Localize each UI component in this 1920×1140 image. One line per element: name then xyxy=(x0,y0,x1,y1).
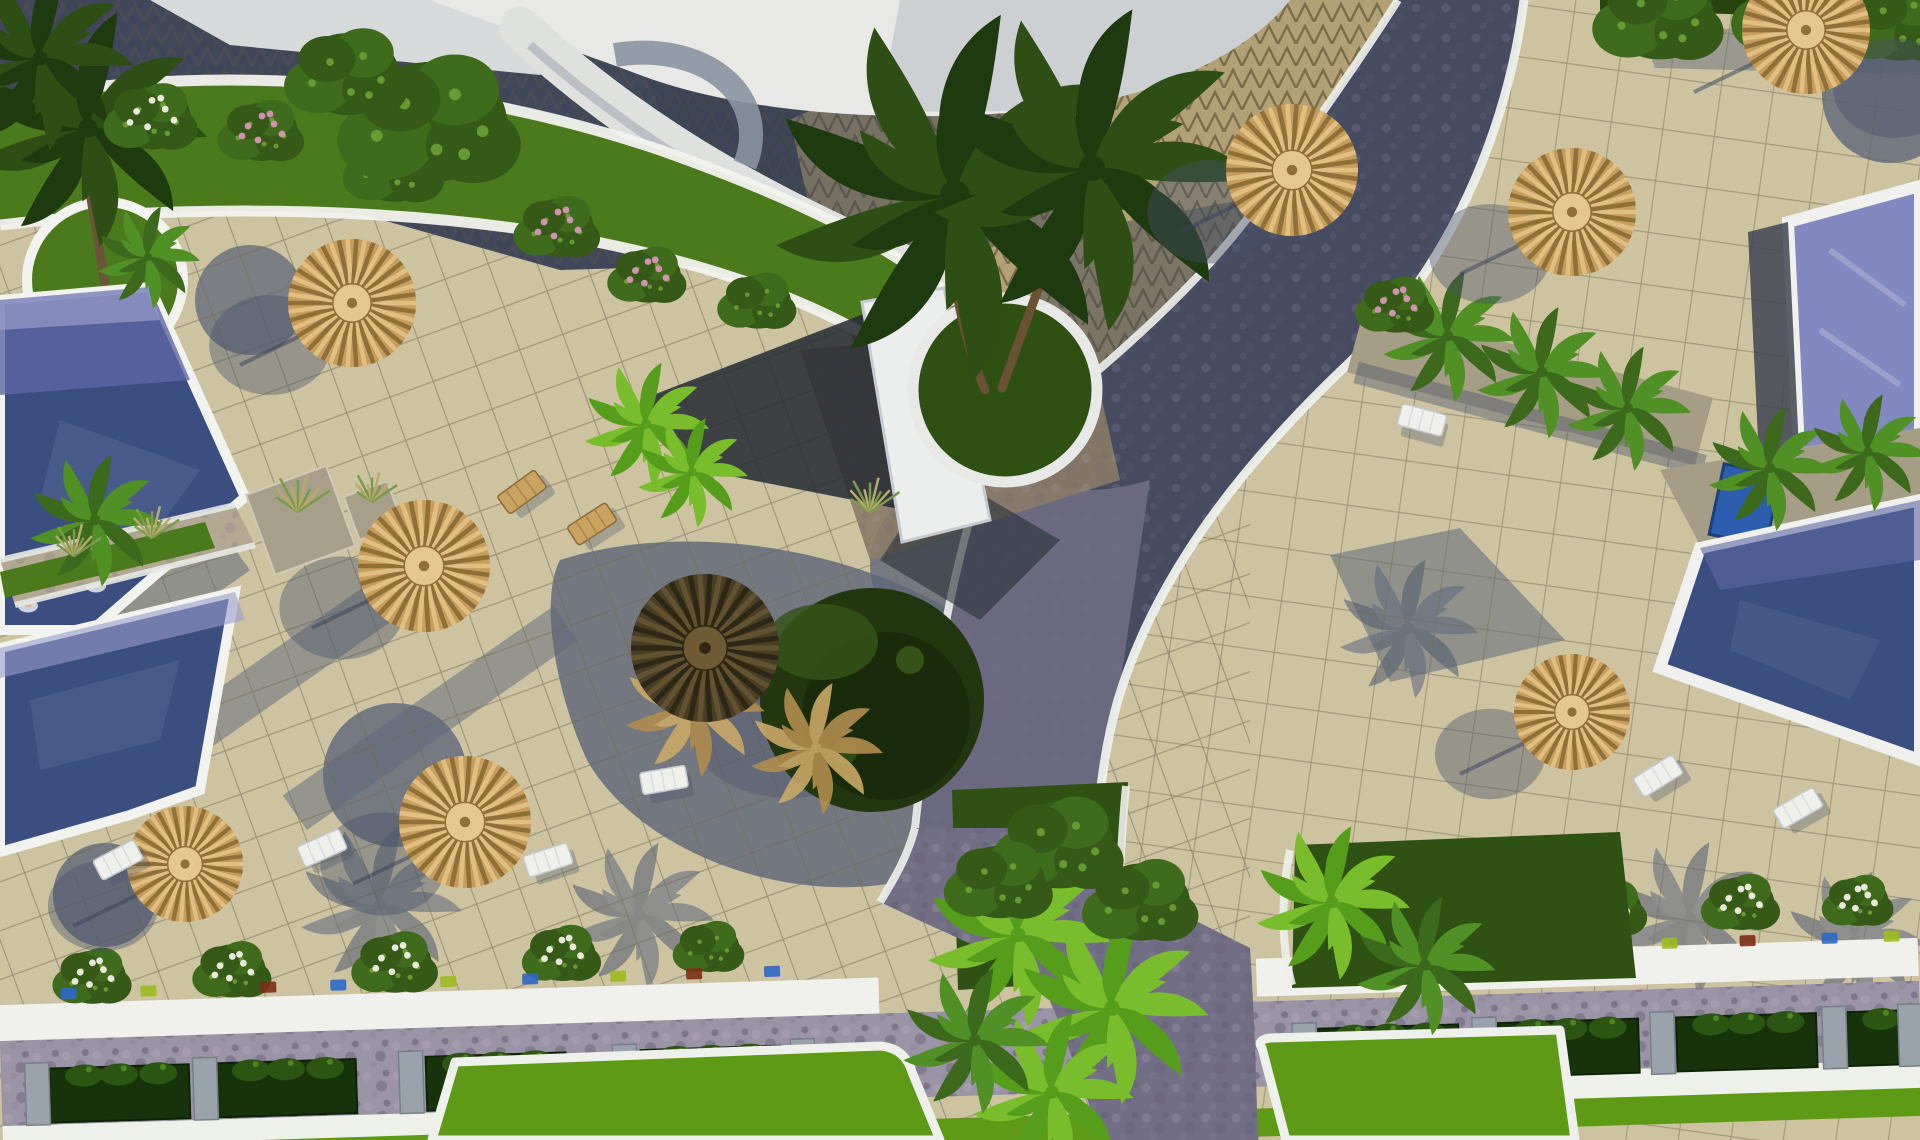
planter-box xyxy=(49,1061,191,1122)
curb-accent-tile xyxy=(60,988,76,999)
curb-accent-tile xyxy=(140,985,156,996)
curb-accent-tile xyxy=(260,981,276,992)
thatch-umbrella xyxy=(399,756,531,888)
thatch-umbrella xyxy=(288,239,416,367)
curb-post xyxy=(193,1057,219,1120)
curb-accent-tile xyxy=(522,973,538,984)
thatch-umbrella xyxy=(631,574,779,722)
curb-post xyxy=(25,1063,51,1126)
planter-box xyxy=(1676,1010,1818,1071)
curb-accent-tile xyxy=(1661,937,1677,948)
curb-accent-tile xyxy=(1739,935,1755,946)
curb-accent-tile xyxy=(1883,930,1899,941)
curb-accent-tile xyxy=(440,976,456,987)
thatch-umbrella xyxy=(1514,654,1630,770)
thatch-umbrella xyxy=(1226,104,1358,236)
lawn-left xyxy=(432,1046,940,1140)
curb-post xyxy=(1650,1012,1676,1075)
planter-box xyxy=(216,1056,358,1117)
curb-accent-tile xyxy=(1821,932,1837,943)
curb-post xyxy=(1898,1004,1920,1067)
curb-post xyxy=(1822,1006,1848,1069)
aerial-resort-render xyxy=(0,0,1920,1140)
lawn-right xyxy=(1260,1030,1575,1140)
curb-accent-tile xyxy=(330,979,346,990)
thatch-umbrella xyxy=(1508,148,1636,276)
curb-post xyxy=(398,1051,424,1114)
thatch-umbrella xyxy=(358,500,490,632)
curb-accent-tile xyxy=(764,966,780,977)
shrub xyxy=(1592,0,1723,60)
curb-accent-tile xyxy=(610,970,626,981)
curb-accent-tile xyxy=(686,968,702,979)
scene-canvas xyxy=(0,0,1920,1140)
